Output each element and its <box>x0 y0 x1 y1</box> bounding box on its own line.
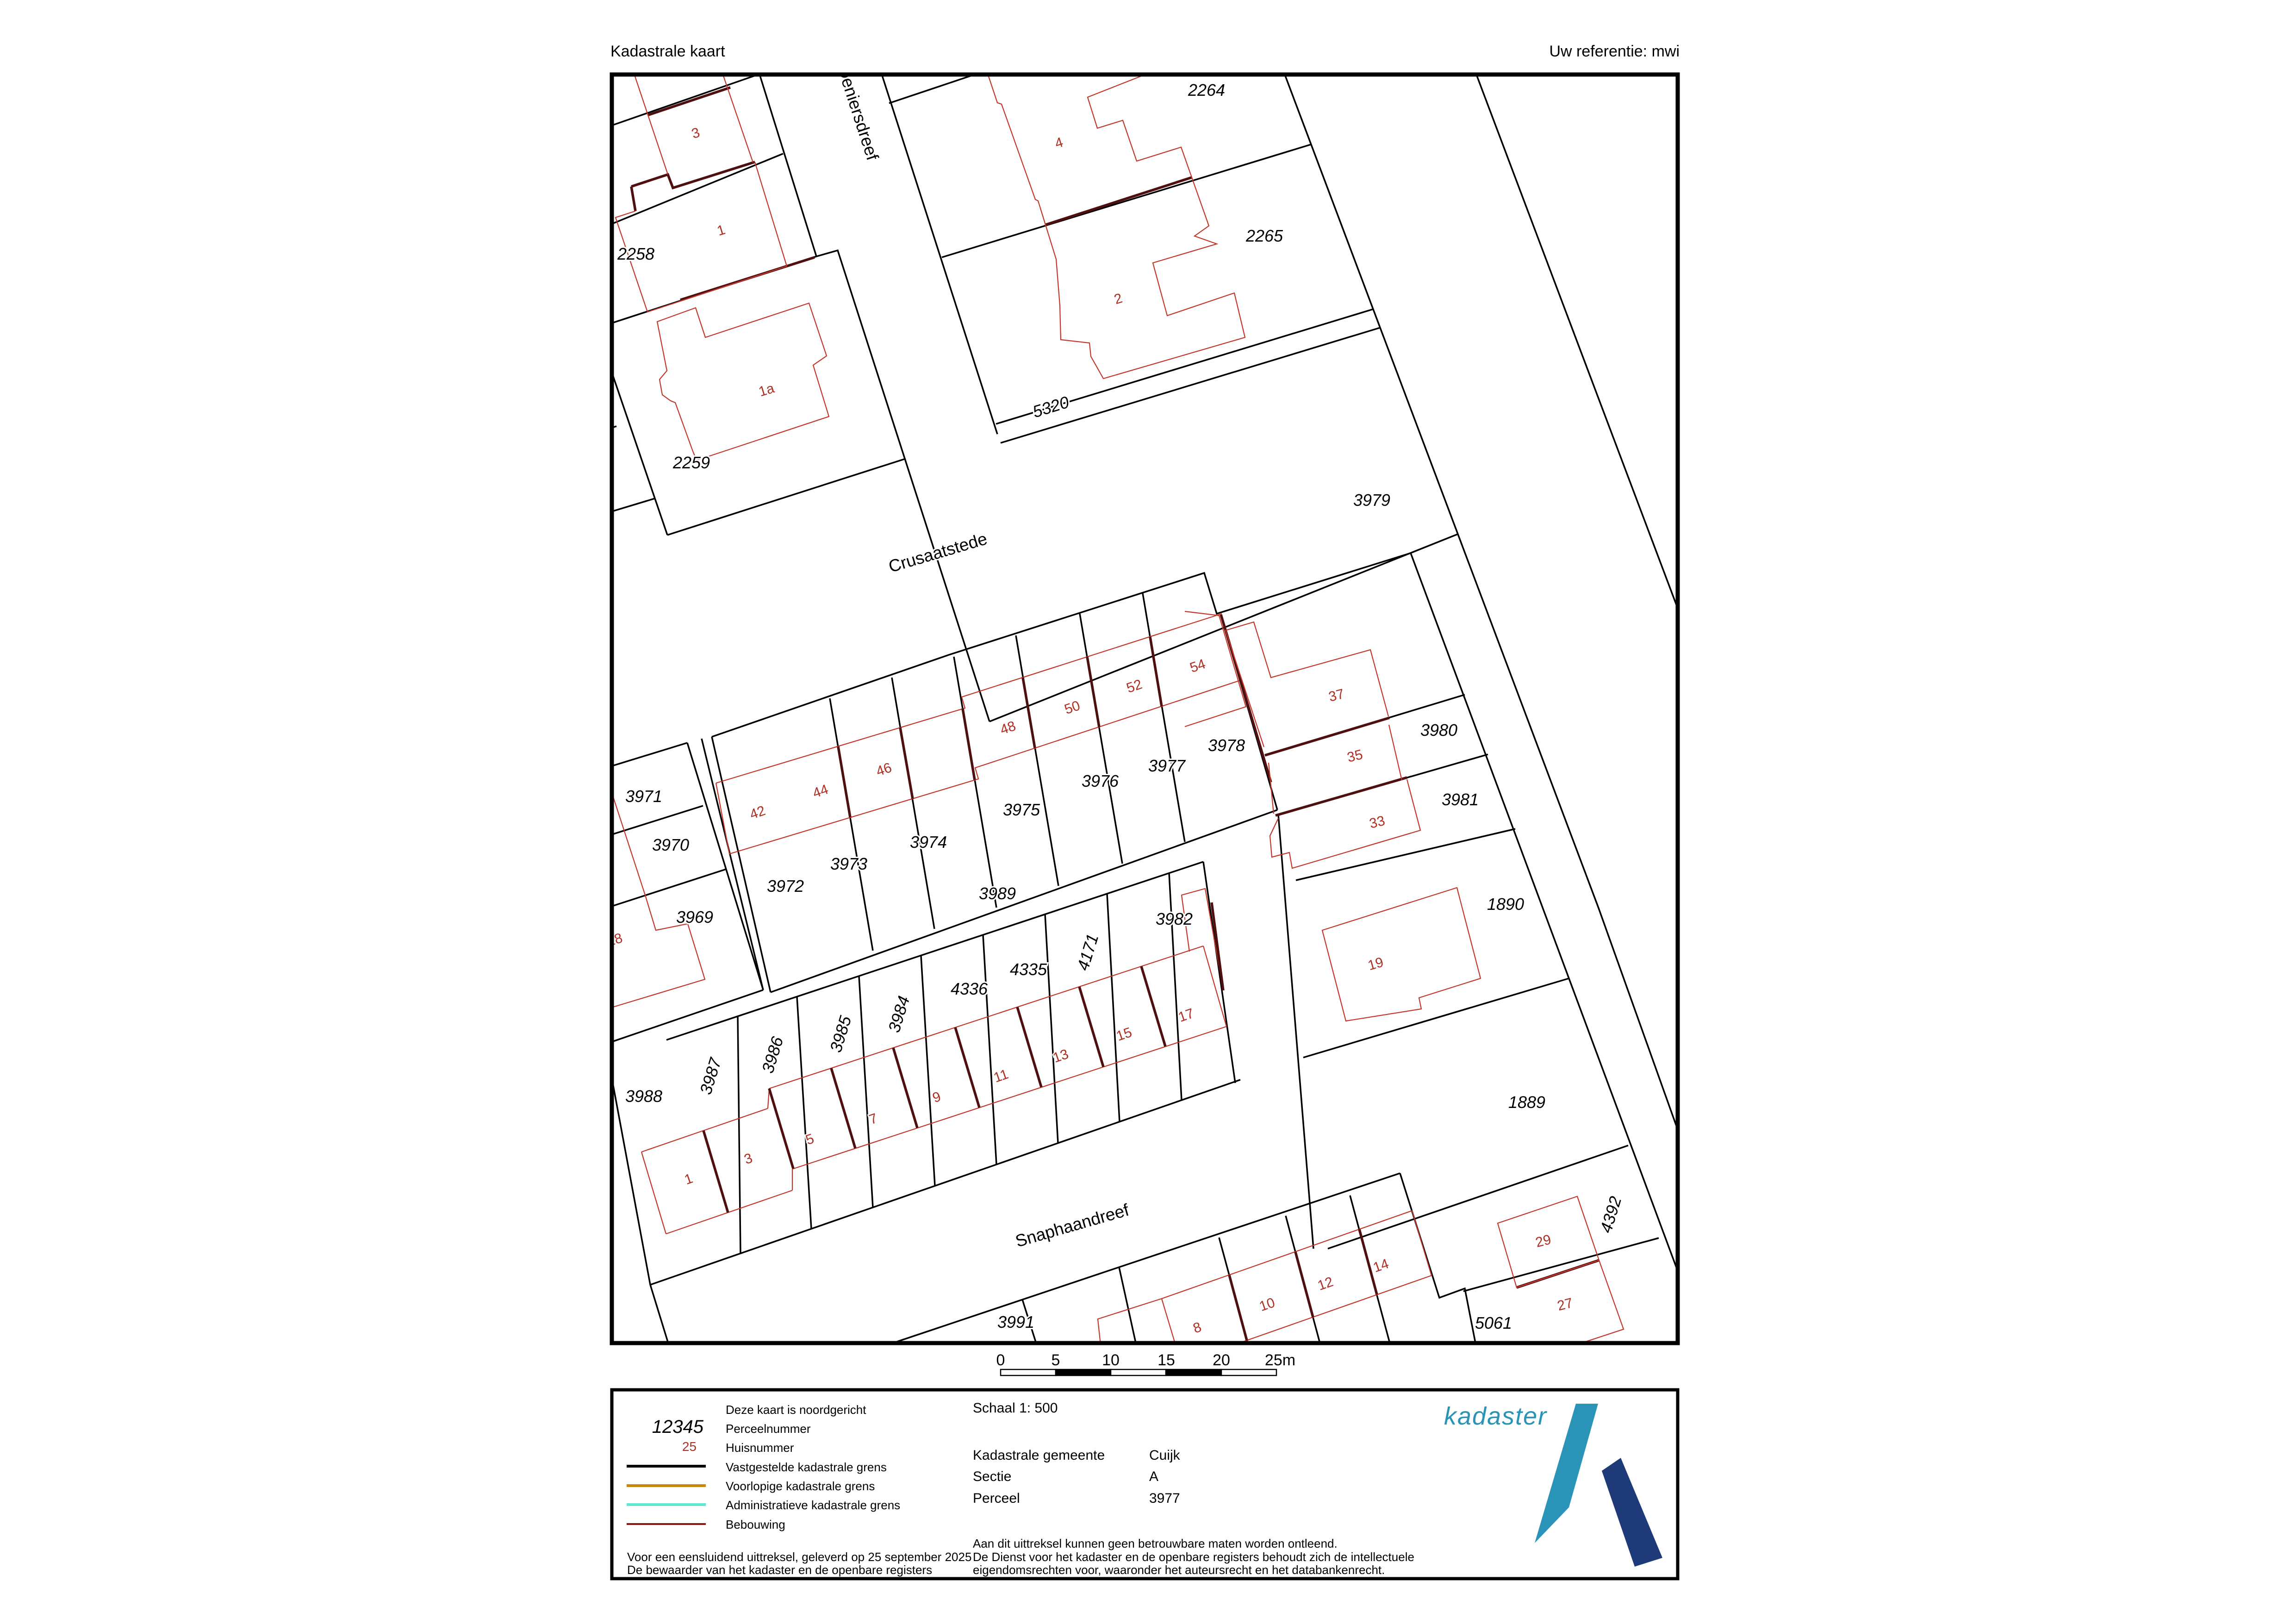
svg-text:3973: 3973 <box>830 854 867 873</box>
svg-text:Voorlopige kadastrale grens: Voorlopige kadastrale grens <box>726 1479 875 1493</box>
svg-text:Sectie: Sectie <box>973 1469 1011 1484</box>
svg-text:3975: 3975 <box>1003 800 1040 819</box>
svg-text:eigendomsrechten voor, waarond: eigendomsrechten voor, waaronder het aut… <box>973 1563 1385 1577</box>
svg-text:3974: 3974 <box>910 833 947 852</box>
svg-text:Bebouwing: Bebouwing <box>726 1518 785 1531</box>
svg-text:2264: 2264 <box>1188 81 1225 100</box>
svg-text:12345: 12345 <box>652 1417 704 1437</box>
svg-text:De bewaarder van het kadaster: De bewaarder van het kadaster en de open… <box>627 1563 932 1577</box>
svg-text:Vastgestelde kadastrale grens: Vastgestelde kadastrale grens <box>726 1460 887 1474</box>
svg-text:3980: 3980 <box>1420 721 1457 740</box>
svg-text:0: 0 <box>996 1351 1005 1369</box>
svg-text:4336: 4336 <box>951 979 988 998</box>
svg-text:3989: 3989 <box>979 884 1016 903</box>
svg-text:3976: 3976 <box>1082 772 1119 790</box>
svg-text:Schaal 1: 500: Schaal 1: 500 <box>973 1400 1058 1416</box>
svg-text:Aan dit uittreksel kunnen geen: Aan dit uittreksel kunnen geen betrouwba… <box>973 1537 1338 1550</box>
svg-text:1890: 1890 <box>1487 895 1524 914</box>
svg-text:2259: 2259 <box>672 453 710 472</box>
svg-text:3979: 3979 <box>1353 491 1390 510</box>
svg-text:2265: 2265 <box>1245 226 1283 245</box>
svg-text:Perceel: Perceel <box>973 1491 1020 1506</box>
svg-text:3972: 3972 <box>767 877 804 896</box>
svg-text:3978: 3978 <box>1208 736 1245 755</box>
svg-text:Voor een eensluidend uittrekse: Voor een eensluidend uittreksel, gelever… <box>627 1550 971 1564</box>
svg-text:Perceelnummer: Perceelnummer <box>726 1422 811 1436</box>
svg-text:3971: 3971 <box>625 787 662 806</box>
svg-text:Kadastrale gemeente: Kadastrale gemeente <box>973 1448 1105 1463</box>
svg-text:Cuijk: Cuijk <box>1149 1448 1181 1463</box>
svg-text:Huisnummer: Huisnummer <box>726 1441 794 1455</box>
svg-text:3981: 3981 <box>1442 790 1479 809</box>
svg-text:Kadastrale kaart: Kadastrale kaart <box>610 43 725 60</box>
svg-text:kadaster: kadaster <box>1444 1402 1547 1430</box>
svg-text:5061: 5061 <box>1475 1313 1512 1332</box>
svg-text:15: 15 <box>1157 1351 1175 1369</box>
svg-text:3977: 3977 <box>1148 756 1186 775</box>
svg-text:A: A <box>1149 1469 1158 1484</box>
svg-text:25m: 25m <box>1265 1351 1295 1369</box>
svg-text:Administratieve kadastrale gre: Administratieve kadastrale grens <box>726 1498 900 1512</box>
svg-text:5: 5 <box>1052 1351 1060 1369</box>
svg-text:Deze kaart is noordgericht: Deze kaart is noordgericht <box>726 1403 866 1417</box>
svg-text:25: 25 <box>682 1439 697 1454</box>
svg-text:4335: 4335 <box>1010 960 1047 979</box>
svg-text:3969: 3969 <box>676 908 713 927</box>
svg-text:2258: 2258 <box>617 244 654 263</box>
svg-text:De Dienst voor het kadaster en: De Dienst voor het kadaster en de openba… <box>973 1550 1414 1564</box>
svg-text:3977: 3977 <box>1149 1491 1180 1506</box>
svg-text:3991: 3991 <box>997 1313 1034 1332</box>
svg-text:10: 10 <box>1102 1351 1120 1369</box>
svg-text:3988: 3988 <box>625 1087 662 1106</box>
svg-text:1889: 1889 <box>1508 1093 1545 1112</box>
svg-text:20: 20 <box>1213 1351 1230 1369</box>
svg-text:Uw referentie: mwi: Uw referentie: mwi <box>1549 43 1680 60</box>
svg-text:3982: 3982 <box>1156 909 1193 928</box>
svg-text:3970: 3970 <box>652 835 689 854</box>
